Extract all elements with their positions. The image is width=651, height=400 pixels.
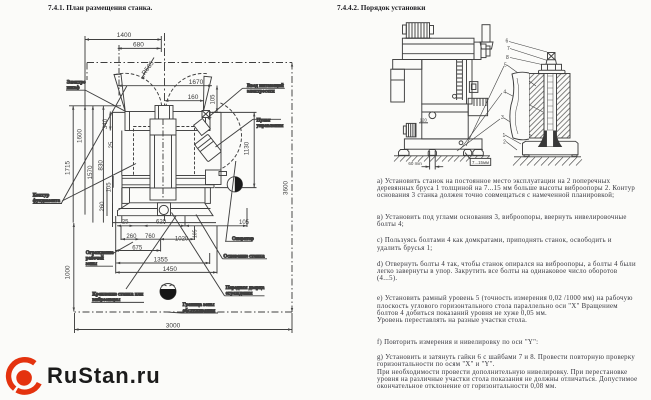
svg-text:830: 830 — [98, 160, 105, 171]
svg-text:260: 260 — [126, 234, 137, 240]
svg-text:1600: 1600 — [76, 129, 83, 144]
svg-text:3600: 3600 — [282, 181, 289, 196]
svg-text:обслуживания: обслуживания — [183, 309, 216, 314]
svg-text:Основание станка: Основание станка — [223, 255, 265, 260]
svg-text:Граница зоны: Граница зоны — [183, 303, 215, 308]
svg-text:виброопоры: виброопоры — [92, 298, 120, 303]
svg-text:1400: 1400 — [117, 32, 132, 39]
svg-text:электросети: электросети — [247, 90, 275, 95]
svg-text:1715: 1715 — [65, 161, 72, 176]
svg-text:Передняя дверца: Передняя дверца — [226, 286, 265, 291]
svg-text:260: 260 — [100, 201, 106, 212]
svg-text:Электро: Электро — [67, 81, 87, 86]
svg-text:3000: 3000 — [166, 323, 181, 330]
svg-text:760: 760 — [145, 234, 156, 240]
svg-text:105: 105 — [211, 94, 217, 105]
svg-text:8: 8 — [506, 55, 509, 61]
svg-text:Контур: Контур — [33, 194, 50, 199]
svg-text:шкаф: шкаф — [67, 86, 81, 91]
svg-text:фундамента: фундамента — [33, 199, 61, 204]
svg-text:5: 5 — [504, 63, 507, 69]
svg-text:управления: управления — [257, 124, 284, 129]
svg-text:1450: 1450 — [163, 266, 178, 273]
svg-text:рабочей: рабочей — [86, 257, 104, 262]
svg-text:25: 25 — [109, 141, 115, 148]
svg-text:7...15мм: 7...15мм — [472, 160, 489, 165]
svg-text:1670: 1670 — [189, 79, 204, 86]
svg-text:Ограждение: Ограждение — [86, 251, 115, 256]
svg-text:Пульт: Пульт — [257, 119, 272, 124]
svg-text:4: 4 — [503, 90, 506, 96]
svg-text:1355: 1355 — [154, 256, 169, 263]
svg-text:60 min: 60 min — [408, 161, 422, 166]
svg-text:Крепление станка или: Крепление станка или — [92, 293, 143, 298]
svg-text:1000: 1000 — [64, 265, 71, 280]
svg-text:160: 160 — [188, 94, 199, 101]
svg-text:Ввод питающий: Ввод питающий — [247, 84, 284, 89]
svg-text:6: 6 — [506, 39, 509, 45]
svg-text:1130: 1130 — [244, 141, 251, 155]
svg-text:зоны: зоны — [86, 262, 97, 267]
svg-text:Оператор: Оператор — [232, 237, 254, 242]
svg-text:1: 1 — [503, 133, 506, 139]
svg-text:675: 675 — [132, 245, 143, 251]
svg-text:1570: 1570 — [87, 165, 94, 180]
svg-text:7: 7 — [507, 46, 510, 52]
svg-text:680: 680 — [133, 42, 144, 49]
svg-text:3: 3 — [501, 115, 504, 121]
svg-text:2: 2 — [503, 140, 506, 146]
svg-text:105: 105 — [192, 229, 198, 238]
svg-text:120: 120 — [420, 118, 428, 123]
svg-text:ограждения: ограждения — [226, 292, 253, 297]
svg-text:105: 105 — [239, 220, 250, 226]
